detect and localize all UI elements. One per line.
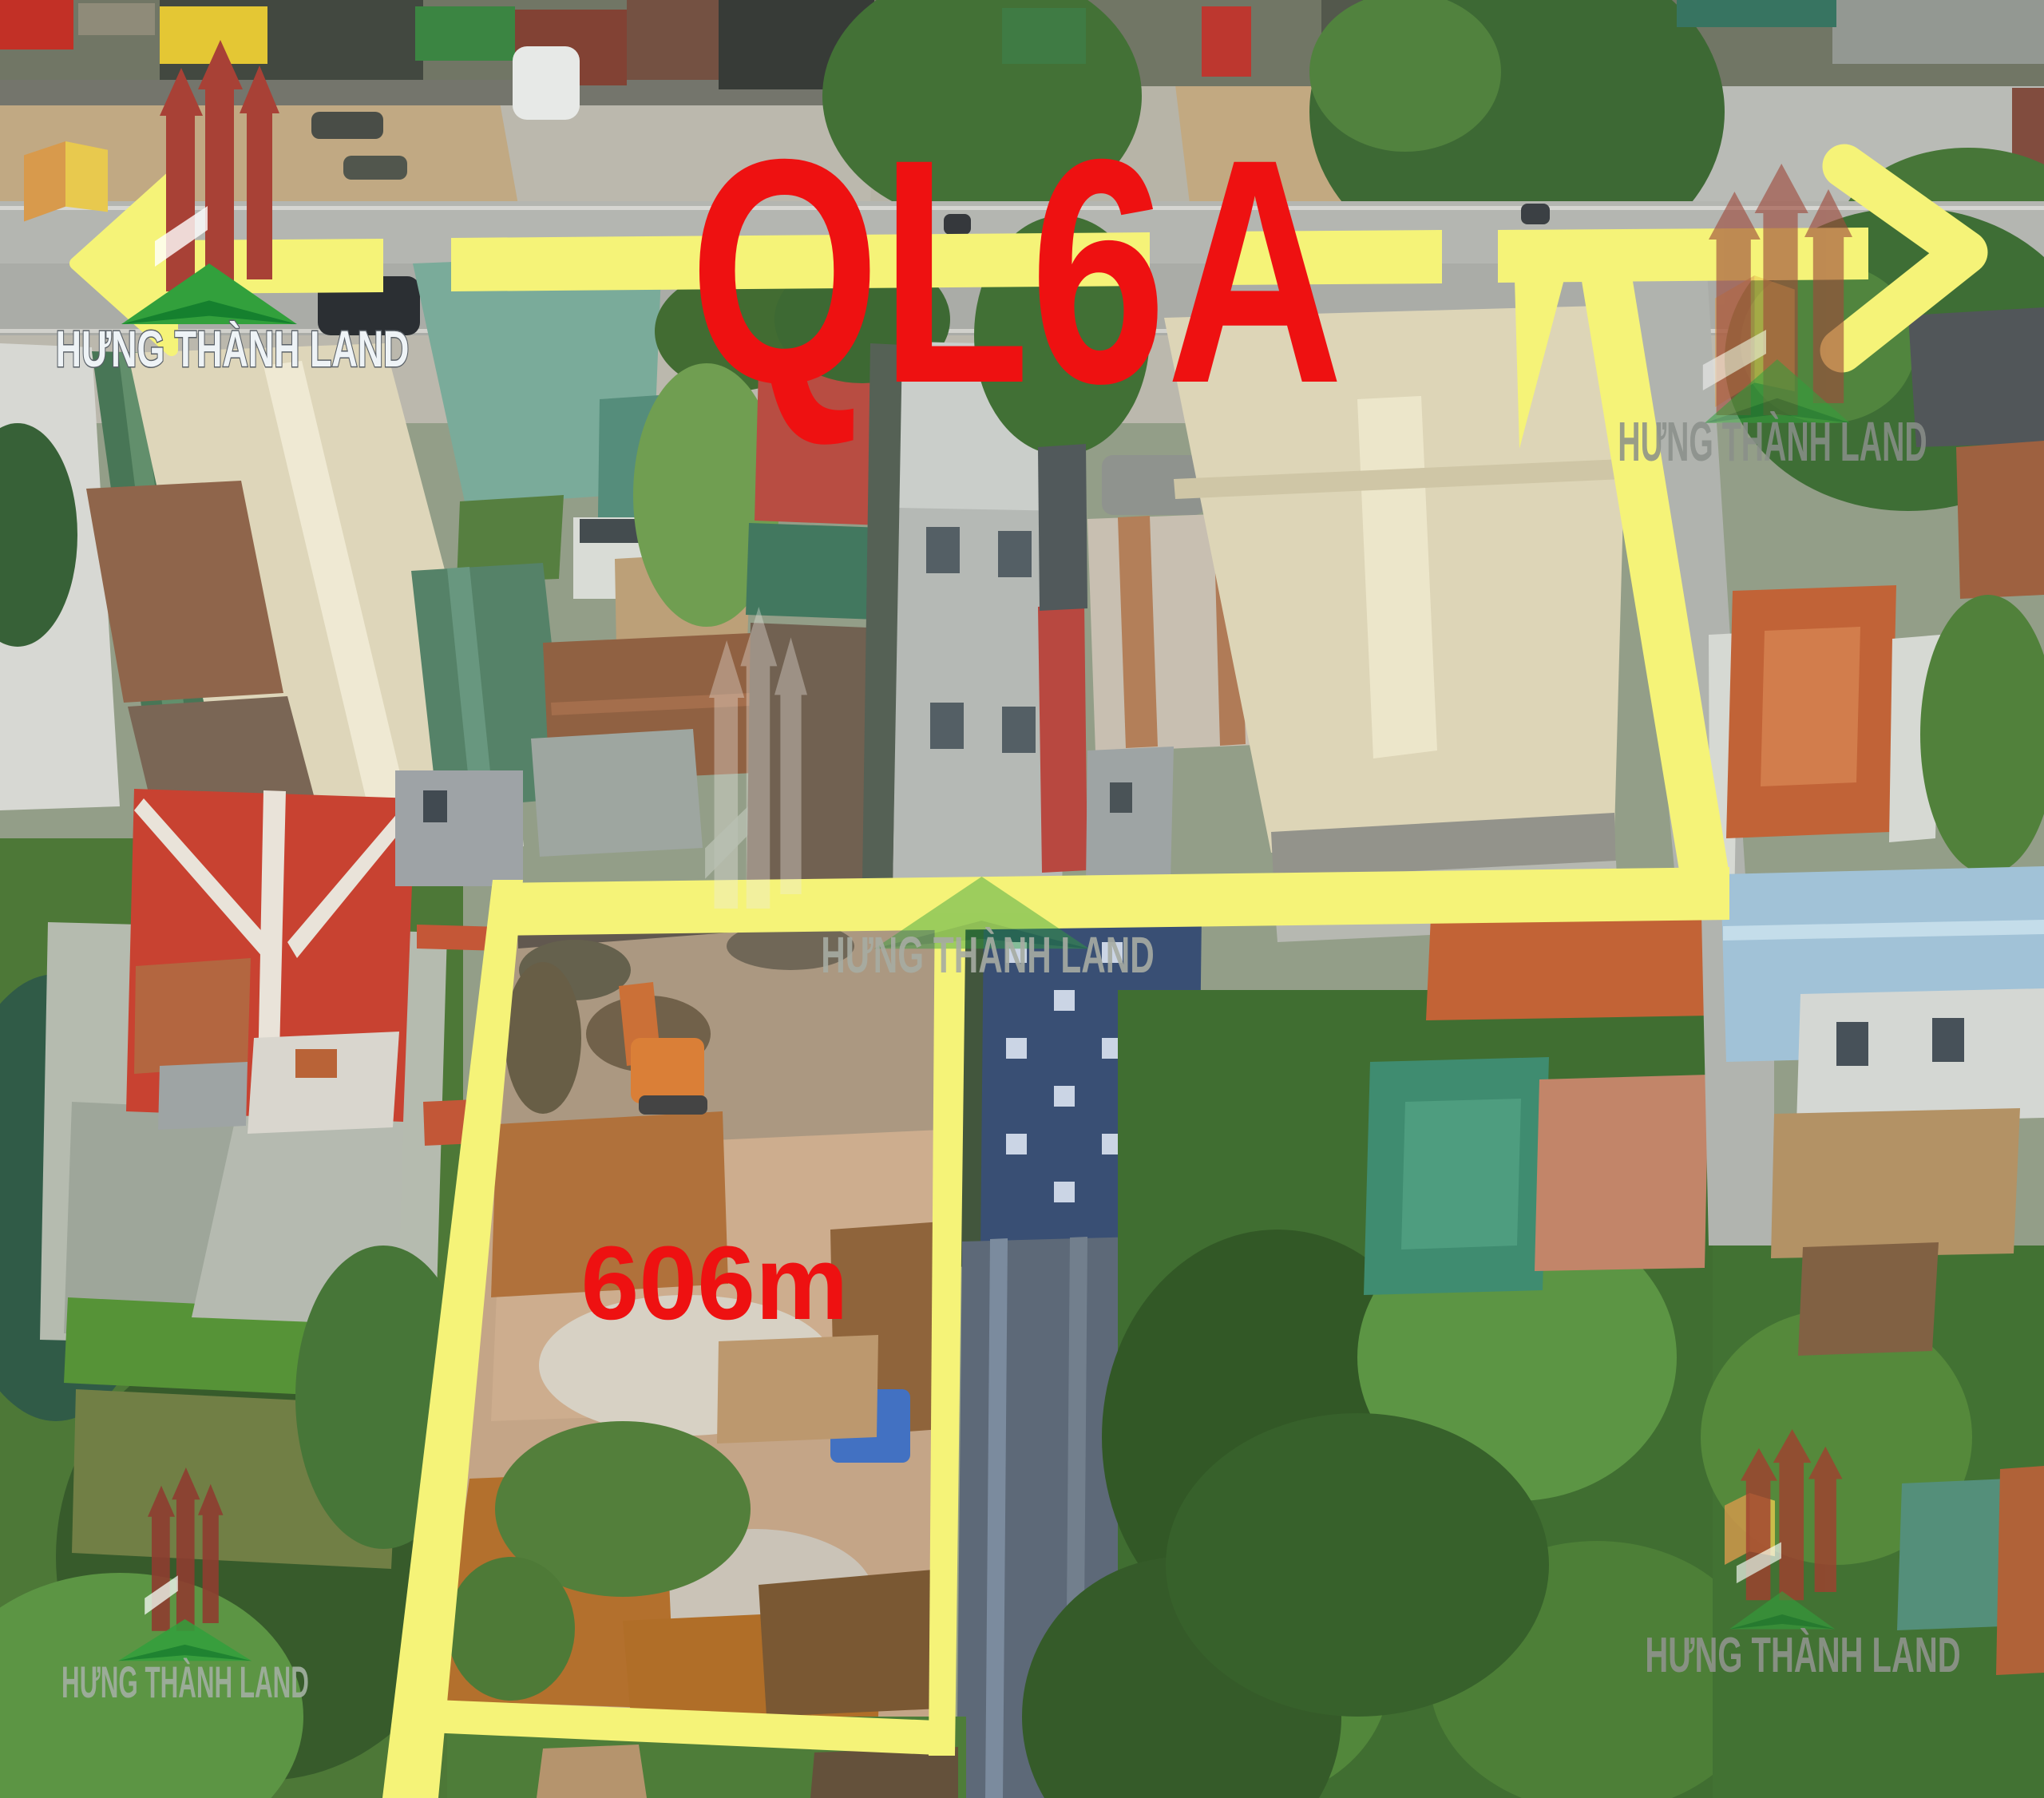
svg-text:HƯNG THÀNH LAND: HƯNG THÀNH LAND — [1618, 410, 1927, 473]
svg-text:HƯNG THÀNH LAND: HƯNG THÀNH LAND — [61, 1657, 309, 1707]
svg-text:QL6A: QL6A — [689, 93, 1343, 450]
svg-text:HƯNG THÀNH LAND: HƯNG THÀNH LAND — [1645, 1628, 1960, 1683]
svg-text:606m: 606m — [580, 1224, 848, 1341]
svg-text:HƯNG THÀNH LAND: HƯNG THÀNH LAND — [56, 320, 410, 378]
svg-text:HƯNG THÀNH LAND: HƯNG THÀNH LAND — [821, 927, 1154, 984]
